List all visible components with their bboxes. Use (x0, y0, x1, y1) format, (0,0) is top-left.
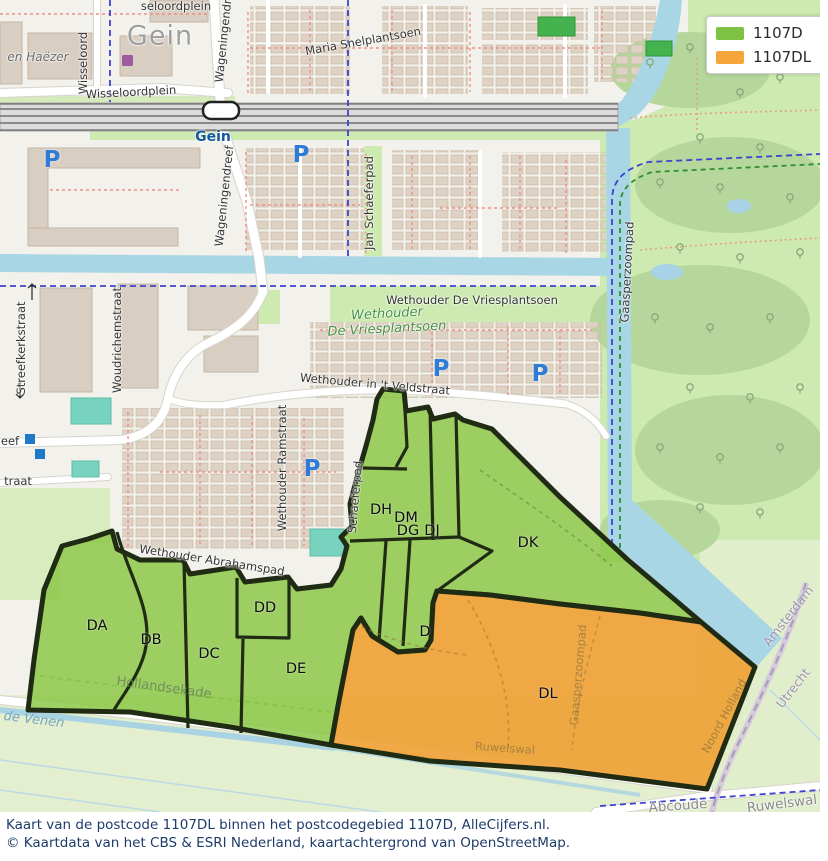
bus-stop-icon (25, 434, 35, 444)
map-background (0, 0, 820, 813)
legend-label-1107d: 1107D (753, 24, 803, 42)
bus-stop-icon (35, 449, 45, 459)
map-legend: 1107D 1107DL (706, 16, 820, 74)
caption-line1: Kaart van de postcode 1107DL binnen het … (6, 816, 828, 834)
caption: Kaart van de postcode 1107DL binnen het … (0, 812, 828, 861)
postcode-map-screenshot: Geinseloordpleinen HaëzerWisseloordWisse… (0, 0, 828, 861)
shop-icon (122, 55, 133, 66)
legend-label-1107dl: 1107DL (753, 48, 811, 66)
legend-swatch-1107dl (716, 51, 744, 64)
caption-line2: © Kaartdata van het CBS & ESRI Nederland… (6, 834, 828, 852)
map-canvas: Geinseloordpleinen HaëzerWisseloordWisse… (0, 0, 820, 813)
legend-item-1107d: 1107D (716, 24, 820, 42)
station-marker-icon (203, 102, 239, 119)
railway (0, 103, 618, 131)
legend-item-1107dl: 1107DL (716, 48, 820, 66)
legend-swatch-1107d (716, 27, 744, 40)
